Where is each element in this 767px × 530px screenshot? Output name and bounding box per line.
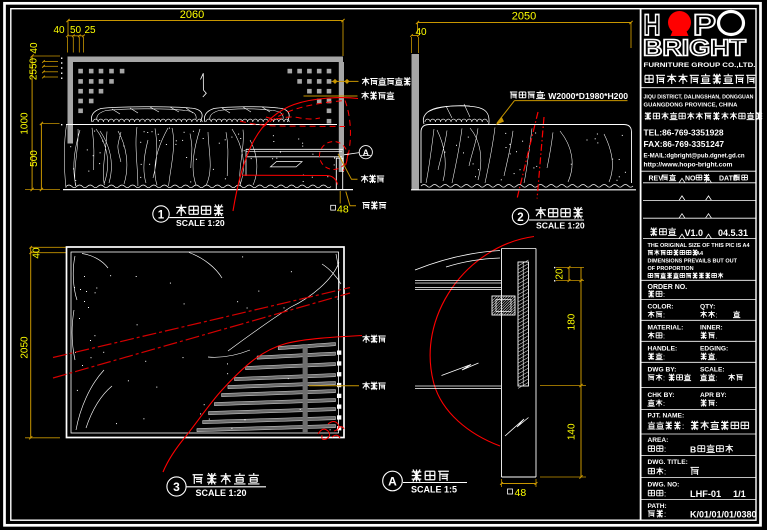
svg-text::: : xyxy=(663,332,665,341)
svg-text:.: . xyxy=(716,353,718,362)
svg-text:: W2000*D1980*H200: : W2000*D1980*H200 xyxy=(543,92,628,101)
svg-text:40: 40 xyxy=(416,27,428,38)
svg-text:http://www.hopo-bright.com: http://www.hopo-bright.com xyxy=(644,162,733,169)
svg-text:SCALE 1:5: SCALE 1:5 xyxy=(411,485,457,495)
svg-text:40: 40 xyxy=(54,25,66,36)
svg-text:2050: 2050 xyxy=(20,336,31,359)
svg-text:ORDER NO.: ORDER NO. xyxy=(648,284,688,291)
svg-text:B: B xyxy=(690,445,696,455)
svg-text:TEL:86-769-3351928: TEL:86-769-3351928 xyxy=(644,128,724,138)
svg-text:500: 500 xyxy=(29,150,40,167)
svg-text:PJT. NAME:: PJT. NAME: xyxy=(648,413,685,420)
svg-text:.: . xyxy=(716,332,718,341)
svg-text:PATH:: PATH: xyxy=(648,503,667,510)
svg-text:1: 1 xyxy=(158,209,165,221)
svg-text::: : xyxy=(663,311,665,320)
svg-text:HANDLE:: HANDLE: xyxy=(648,346,678,353)
svg-text:48: 48 xyxy=(515,487,527,499)
svg-text:OF PROPORTION: OF PROPORTION xyxy=(648,266,694,272)
svg-text:40: 40 xyxy=(31,247,42,259)
svg-text:04.5.31: 04.5.31 xyxy=(718,228,748,238)
svg-text:A4: A4 xyxy=(696,251,704,257)
svg-text:A: A xyxy=(388,474,397,488)
svg-text:2060: 2060 xyxy=(180,9,204,21)
svg-text:E-MAIL:dgbright@pub.dgnet.gd.c: E-MAIL:dgbright@pub.dgnet.gd.cn xyxy=(644,153,745,160)
svg-text:SCALE 1:20: SCALE 1:20 xyxy=(536,221,585,231)
svg-text::: : xyxy=(664,468,666,477)
svg-text::: : xyxy=(682,422,684,431)
svg-text:QTY:: QTY: xyxy=(700,304,715,311)
svg-text:REV: REV xyxy=(649,176,664,183)
svg-text:NO: NO xyxy=(685,176,696,183)
svg-text:DWG. TITLE:: DWG. TITLE: xyxy=(648,459,688,466)
svg-text::: : xyxy=(716,311,718,320)
svg-text:CHK BY:: CHK BY: xyxy=(648,392,675,399)
svg-text:FAX:86-769-3351247: FAX:86-769-3351247 xyxy=(644,139,725,149)
svg-text:V1.0: V1.0 xyxy=(685,228,704,238)
svg-text:SCALE:: SCALE: xyxy=(700,367,725,374)
svg-text:MATERIAL:: MATERIAL: xyxy=(648,325,684,332)
svg-text:INNER:: INNER: xyxy=(700,325,723,332)
svg-text:SCALE 1:20: SCALE 1:20 xyxy=(196,488,247,498)
svg-text:APR BY:: APR BY: xyxy=(700,392,727,399)
svg-text::: : xyxy=(664,445,666,454)
svg-text:20: 20 xyxy=(555,268,566,280)
svg-text:THE ORIGINAL SIZE OF THIS PIC: THE ORIGINAL SIZE OF THIS PIC IS A4 xyxy=(648,243,751,249)
svg-text:25: 25 xyxy=(85,25,97,36)
svg-text:140: 140 xyxy=(567,423,578,440)
svg-text:48: 48 xyxy=(337,204,349,216)
svg-text:1000: 1000 xyxy=(20,112,31,135)
svg-text:2550: 2550 xyxy=(29,57,40,80)
svg-text::: : xyxy=(663,290,665,299)
svg-text:SCALE 1:20: SCALE 1:20 xyxy=(176,218,225,228)
svg-text:2050: 2050 xyxy=(512,11,536,23)
svg-text:DIMENSIONS PREVAILS BUT OUT: DIMENSIONS PREVAILS BUT OUT xyxy=(648,259,738,265)
svg-text::: : xyxy=(663,399,665,408)
svg-text:40: 40 xyxy=(29,42,40,54)
svg-text:180: 180 xyxy=(567,313,578,330)
svg-text::: : xyxy=(663,353,665,362)
svg-text:FURNITURE GROUP CO.,LTD.: FURNITURE GROUP CO.,LTD. xyxy=(644,62,756,69)
svg-text::: : xyxy=(716,399,718,408)
svg-text:LHF-01: LHF-01 xyxy=(690,489,721,499)
svg-text:COLOR:: COLOR: xyxy=(648,304,674,311)
svg-text:3: 3 xyxy=(173,480,180,494)
svg-text::: : xyxy=(664,510,666,519)
svg-text:AREA:: AREA: xyxy=(648,437,669,444)
svg-text:EDGING:: EDGING: xyxy=(700,346,728,353)
svg-text:JIQU DISTRICT, DALINGSHAN, DON: JIQU DISTRICT, DALINGSHAN, DONGGUAN xyxy=(644,95,754,101)
svg-text:DWG. NO:: DWG. NO: xyxy=(648,482,680,489)
svg-text:GUANGDONG PROVINCE, CHINA: GUANGDONG PROVINCE, CHINA xyxy=(644,103,739,109)
svg-text:1/1: 1/1 xyxy=(733,489,746,499)
svg-text:DWG BY:: DWG BY: xyxy=(648,367,677,374)
svg-text:50: 50 xyxy=(70,25,82,36)
svg-text::: : xyxy=(663,374,665,383)
svg-text:K/01/01/01/0380: K/01/01/01/0380 xyxy=(690,510,757,520)
svg-text::: : xyxy=(716,374,718,383)
svg-text::: : xyxy=(664,490,666,499)
svg-text:BRIGHT: BRIGHT xyxy=(643,35,746,61)
svg-text:2: 2 xyxy=(517,212,523,224)
